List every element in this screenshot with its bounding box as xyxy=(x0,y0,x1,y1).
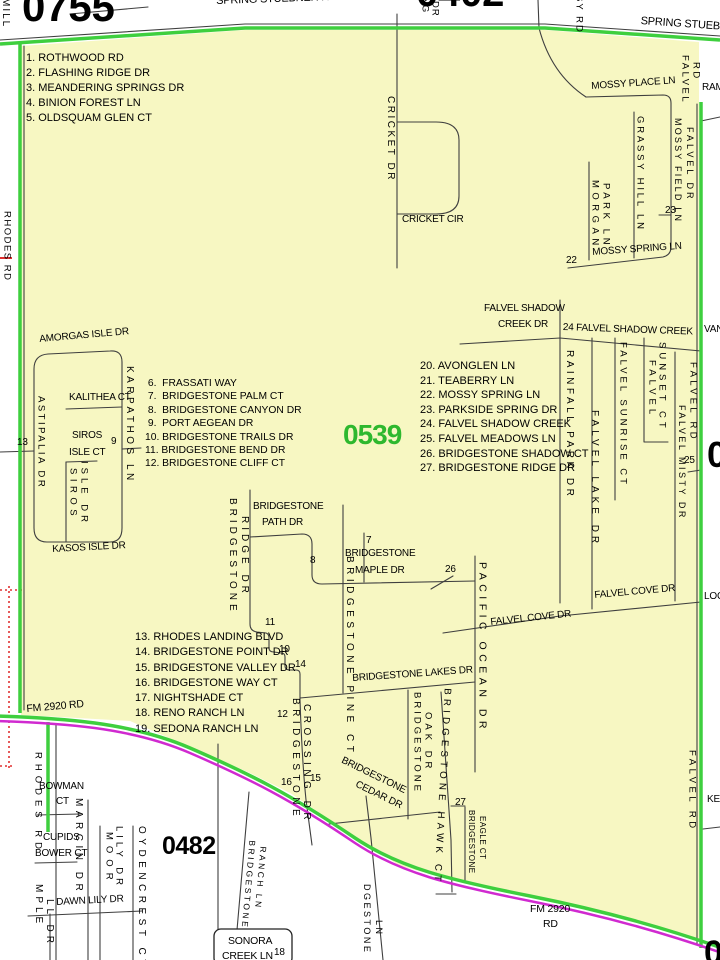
bridgestone-crossing-dr-1: BRIDGESTONE xyxy=(290,698,300,820)
bridgestone-oak-dr-1: BRIDGESTONE xyxy=(412,692,422,794)
map-num-15: 15 xyxy=(310,774,321,784)
falvel-sunrise-ct: FALVEL SUNRISE CT xyxy=(618,342,628,487)
falvel-shadow-creek-dr-1: FALVEL SHADOW xyxy=(484,304,565,314)
ln-fragment: LN xyxy=(374,920,383,937)
map-num-7: 7 xyxy=(366,536,371,546)
falvel-shadow-creek-dr-2: CREEK DR xyxy=(498,320,548,330)
bowman-ct-1: BOWMAN xyxy=(39,782,84,792)
street-index-item: 1. ROTHWOOD RD xyxy=(26,51,184,66)
dr-fragment: DR xyxy=(430,1,440,17)
bridgestone-ridge-dr-1: BRIDGESTONE xyxy=(227,498,237,615)
street-index-item: 10. BRIDGESTONE TRAILS DR xyxy=(145,431,302,444)
street-index-item: 3. MEANDERING SPRINGS DR xyxy=(26,81,184,96)
morgan-park-ln-2: PARK LN xyxy=(601,183,611,248)
street-index-item: 2. FLASHING RIDGE DR xyxy=(26,66,184,81)
bridgestone-ridge-dr-2: RIDGE DR xyxy=(239,516,249,597)
grassy-hill-ln: GRASSY HILL LN xyxy=(635,116,645,232)
mple-fragment: MPLE xyxy=(33,884,43,927)
mill-fragment: MILL xyxy=(0,0,10,28)
map-num-8: 8 xyxy=(310,556,315,566)
bridgestone-eagle-ct-1: BRIDGESTONE xyxy=(467,810,475,874)
moor-lily-dr-1: MOOR xyxy=(104,832,114,886)
bridgestone-crossing-dr-2: CROSSING DR xyxy=(301,704,311,824)
street-index-item: 13. RHODES LANDING BLVD xyxy=(135,630,296,645)
map-num-23: 23 xyxy=(665,206,676,216)
street-index-item: 4. BINION FOREST LN xyxy=(26,96,184,111)
map-num-9: 9 xyxy=(111,437,116,447)
bridgestone-path-dr-2: PATH DR xyxy=(262,518,303,528)
falvel-sunset-ct-2: SUNSET CT xyxy=(657,342,667,432)
falvel-lake-dr: FALVEL LAKE DR xyxy=(589,410,599,547)
num-0539: 0539 xyxy=(343,421,401,450)
num-0755: 0755 xyxy=(22,0,115,29)
falvel-dr: FALVEL DR xyxy=(685,127,694,202)
map-num-22: 22 xyxy=(566,256,577,266)
street-index-item: 18. RENO RANCH LN xyxy=(135,706,296,721)
map-num-11: 11 xyxy=(265,618,275,628)
bridgestone-maple-dr-2: MAPLE DR xyxy=(355,566,405,576)
map-num-10: 10 xyxy=(279,645,290,655)
street-index-item: 5. OLDSQUAM GLEN CT xyxy=(26,111,184,126)
ram-fragment: RAM xyxy=(702,83,720,93)
dgestone-fragment: DGESTONE xyxy=(362,884,371,954)
bowman-ct-2: CT xyxy=(56,797,69,807)
map-num-26: 26 xyxy=(445,565,456,575)
bridgestone-path-dr-1: BRIDGESTONE xyxy=(253,502,323,512)
map-num-18: 18 xyxy=(274,948,285,958)
falvel-rd-south: FALVEL RD xyxy=(687,750,697,832)
falvel-rd-ne-2: RD xyxy=(691,62,701,81)
loc-fragment: LOC xyxy=(704,592,720,602)
bridgestone-eagle-ct-2: EAGLE CT xyxy=(478,816,486,860)
street-index-item: 17. NIGHTSHADE CT xyxy=(135,691,296,706)
map-num-16: 16 xyxy=(281,778,292,788)
cricket-cir: CRICKET CIR xyxy=(402,215,464,225)
rhodes-rd-south: RHODES RD xyxy=(33,752,43,854)
map-canvas[interactable]: 1. ROTHWOOD RD2. FLASHING RIDGE DR3. MEA… xyxy=(0,0,720,960)
street-index-item: 8. BRIDGESTONE CANYON DR xyxy=(145,404,302,417)
street-index-item: 6. FRASSATI WAY xyxy=(145,377,302,390)
street-index-nw: 1. ROTHWOOD RD2. FLASHING RIDGE DR3. MEA… xyxy=(26,51,184,126)
bridgestone-oak-dr-2: OAK DR xyxy=(423,712,433,772)
kalithea-ct: KALITHEA CT xyxy=(69,393,131,403)
map-num-12: 12 xyxy=(277,710,288,720)
street-index-item: 19. SEDONA RANCH LN xyxy=(135,722,296,737)
sonora-creek-ln-1: SONORA xyxy=(228,936,272,947)
street-index-item: 16. BRIDGESTONE WAY CT xyxy=(135,676,296,691)
map-num-14: 14 xyxy=(295,660,306,670)
rhodes-rd-north: RHODES RD xyxy=(2,211,12,282)
siros-isle-ct-2: ISLE CT xyxy=(69,448,105,458)
street-map-graphics xyxy=(0,0,720,960)
ll-dr-fragment: LL DR xyxy=(44,899,54,947)
num-right-mid: 05 xyxy=(707,437,720,474)
pacific-ocean-dr: PACIFIC OCEAN DR xyxy=(477,562,488,733)
ng-fragment: NG xyxy=(420,0,430,13)
karpathos-ln: KARPATHOS LN xyxy=(124,366,134,484)
street-index-item: 14. BRIDGESTONE POINT DR xyxy=(135,645,296,660)
falvel-rd-mid: FALVEL RD xyxy=(688,362,698,442)
bridgestone-pine-ct: BRIDGESTONE PINE CT xyxy=(344,556,354,756)
siros-isle-dr-1: SIROS xyxy=(68,468,78,520)
oydencrest-ct: OYDENCREST CT xyxy=(136,826,146,960)
sy-rd-fragment: SY RD xyxy=(574,0,584,34)
marcin-dr: MARCIN DR xyxy=(73,798,83,895)
street-index-item: 9. PORT AEGEAN DR xyxy=(145,417,302,430)
fm-2920-rd-south-1: FM 2920 xyxy=(530,904,570,915)
siros-isle-ct-1: SIROS xyxy=(72,431,102,441)
moor-lily-dr-2: LILY DR xyxy=(114,826,124,889)
astipalia-dr: ASTIPALIA DR xyxy=(36,396,46,489)
morgan-park-ln-1: MORGAN xyxy=(590,180,600,250)
street-index-item: 11. BRIDGESTONE BEND DR xyxy=(145,444,302,457)
sonora-creek-ln-2: CREEK LN xyxy=(222,951,273,960)
ke-fragment: KE xyxy=(707,795,720,805)
street-index-center: 6. FRASSATI WAY 7. BRIDGESTONE PALM CT 8… xyxy=(145,377,302,471)
siros-isle-dr-2: ISLE DR xyxy=(79,461,89,526)
street-index-item: 12. BRIDGESTONE CLIFF CT xyxy=(145,457,302,470)
cricket-dr: CRICKET DR xyxy=(385,96,395,182)
map-num-25: 25 xyxy=(684,456,695,466)
falvel-rd-ne-1: FALVEL xyxy=(680,55,690,104)
rainfall-park-dr: RAINFALL PARK DR xyxy=(564,350,574,499)
map-num-13: 13 xyxy=(17,438,28,448)
fm-2920-rd-south-2: RD xyxy=(543,919,558,930)
map-num-27: 27 xyxy=(455,798,466,808)
bridgestone-maple-dr-1: BRIDGESTONE xyxy=(345,549,415,559)
street-index-sw: 13. RHODES LANDING BLVD14. BRIDGESTONE P… xyxy=(135,630,296,737)
van-fragment: VAN xyxy=(704,325,720,335)
num-bottom-right: 0 xyxy=(704,936,720,960)
falvel-sunset-ct-1: FALVEL xyxy=(647,360,657,418)
num-0482: 0482 xyxy=(162,834,216,860)
street-index-item: 15. BRIDGESTONE VALLEY DR xyxy=(135,661,296,676)
street-index-item: 7. BRIDGESTONE PALM CT xyxy=(145,390,302,403)
